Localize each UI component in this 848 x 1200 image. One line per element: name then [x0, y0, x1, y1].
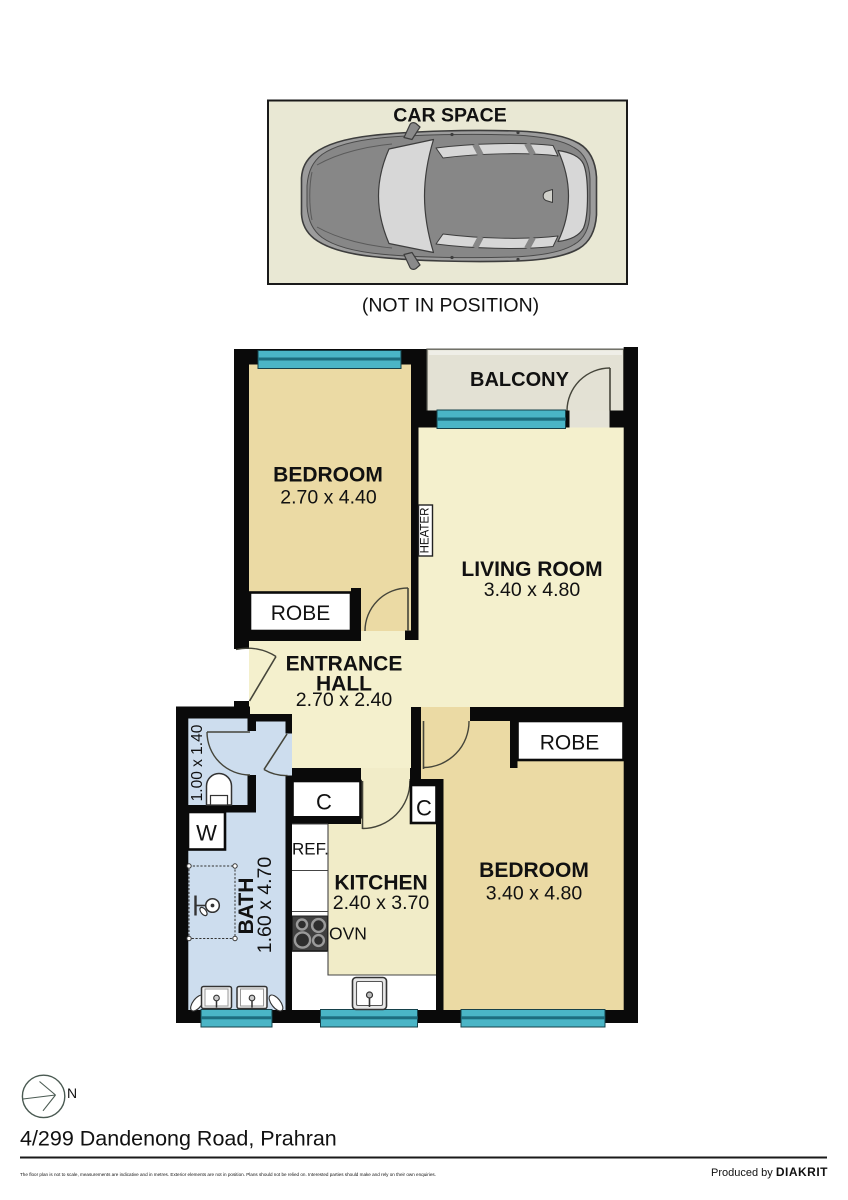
svg-text:LIVING ROOM: LIVING ROOM — [461, 558, 602, 581]
svg-text:BALCONY: BALCONY — [470, 369, 570, 391]
svg-text:ROBE: ROBE — [271, 602, 331, 625]
svg-text:The floor plan is not to scale: The floor plan is not to scale, measurem… — [20, 1172, 436, 1177]
svg-text:3.40 x 4.80: 3.40 x 4.80 — [486, 883, 583, 905]
svg-text:2.40 x 3.70: 2.40 x 3.70 — [333, 892, 430, 914]
svg-text:1.60 x 4.70: 1.60 x 4.70 — [254, 857, 276, 954]
svg-text:1.00 x 1.40: 1.00 x 1.40 — [189, 724, 206, 801]
svg-text:C: C — [316, 790, 332, 815]
svg-text:BEDROOM: BEDROOM — [479, 859, 589, 882]
svg-text:Produced by DIAKRIT: Produced by DIAKRIT — [711, 1165, 828, 1179]
svg-text:2.70 x 4.40: 2.70 x 4.40 — [280, 487, 377, 509]
svg-text:N: N — [67, 1085, 77, 1101]
svg-text:2.70 x 2.40: 2.70 x 2.40 — [296, 689, 393, 711]
svg-text:OVN: OVN — [329, 924, 367, 944]
svg-text:BEDROOM: BEDROOM — [273, 464, 383, 487]
svg-text:C: C — [416, 796, 432, 821]
svg-text:(NOT IN POSITION): (NOT IN POSITION) — [362, 295, 539, 317]
svg-text:REF.: REF. — [292, 840, 329, 859]
svg-text:W: W — [196, 821, 217, 846]
svg-text:HEATER: HEATER — [420, 508, 432, 554]
svg-text:ROBE: ROBE — [540, 732, 600, 755]
svg-text:3.40 x 4.80: 3.40 x 4.80 — [484, 579, 581, 601]
svg-text:4/299 Dandenong Road, Prahran: 4/299 Dandenong Road, Prahran — [20, 1127, 337, 1151]
